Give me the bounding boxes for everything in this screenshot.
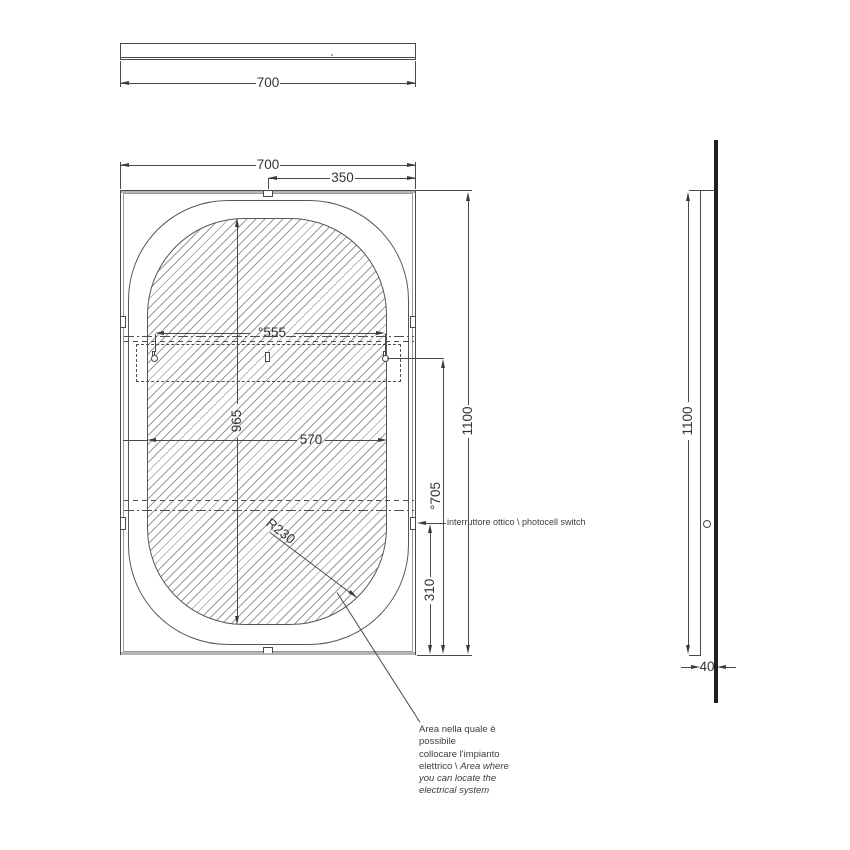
arrow-up-icon xyxy=(686,192,690,201)
mirror-profile-line xyxy=(700,190,701,655)
dim-line-965 xyxy=(237,227,238,404)
photocell-label: interruttore ottico \ photocell switch xyxy=(447,517,586,527)
dim-label-40: 40 xyxy=(698,660,716,674)
dim-label-965: 965 xyxy=(230,404,244,438)
arrow-left-icon xyxy=(417,521,426,525)
ext-line xyxy=(416,190,472,191)
ext-line xyxy=(417,655,472,656)
dim-line-1100 xyxy=(468,438,469,645)
dim-label-1100-side: 1100 xyxy=(681,404,695,438)
note-line: Area nella quale è xyxy=(419,724,539,736)
dim-label-705: °705 xyxy=(429,479,443,513)
dim-label-700: 700 xyxy=(238,158,298,172)
ext-line xyxy=(689,655,701,656)
arrow-up-icon xyxy=(235,218,239,227)
dim-hook xyxy=(268,179,269,189)
ext-line xyxy=(387,358,444,359)
note-line: elettrico \ Area where xyxy=(419,761,539,773)
arrow-left-icon xyxy=(155,331,164,335)
arrow-left-icon xyxy=(268,176,277,180)
arrow-up-icon xyxy=(428,524,432,533)
arrow-right-icon xyxy=(407,176,416,180)
hidden-line-top xyxy=(124,341,414,342)
top-notch xyxy=(263,191,273,197)
slot-hole xyxy=(151,355,158,362)
electrical-area-note: Area nella quale è possibile collocare l… xyxy=(419,724,539,798)
arrow-up-icon xyxy=(441,359,445,368)
arrow-left-icon xyxy=(120,163,129,167)
arrow-down-icon xyxy=(686,645,690,654)
arrow-right-icon xyxy=(407,81,416,85)
edge-clip-top-left xyxy=(120,316,126,328)
arrow-down-icon xyxy=(441,645,445,654)
dim-line-1100-side xyxy=(688,201,689,402)
photocell-switch xyxy=(410,517,416,530)
dim-line-310 xyxy=(430,533,431,577)
hidden-line-bottom xyxy=(124,500,414,501)
photocell-side-circle xyxy=(703,520,711,528)
dim-line-965 xyxy=(237,438,238,616)
arrow-right-icon xyxy=(376,331,385,335)
arrow-left-icon xyxy=(717,665,726,669)
note-line: you can locate the xyxy=(419,773,539,785)
dim-hook xyxy=(155,334,156,352)
note-line: possibile xyxy=(419,736,539,748)
hanging-slot-right xyxy=(381,351,389,363)
dim-label-555: °555 xyxy=(248,326,296,340)
dim-line-1100 xyxy=(468,201,469,405)
arrow-left-icon xyxy=(120,81,129,85)
note-line: collocare l'impianto xyxy=(419,749,539,761)
electrical-area-hatch xyxy=(147,218,387,625)
arrow-right-icon xyxy=(407,163,416,167)
note-line: electrical system xyxy=(419,785,539,797)
dim-hook xyxy=(385,334,386,352)
arrow-down-icon xyxy=(235,616,239,625)
drawing-canvas: 700 700 xyxy=(0,0,850,850)
dim-label-310: 310 xyxy=(423,573,437,607)
centerline-switch xyxy=(124,510,414,511)
edge-clip-bottom-left xyxy=(120,517,126,530)
dim-line-555 xyxy=(294,333,377,334)
hanging-slot-left xyxy=(150,351,158,363)
dim-label-570: 570 xyxy=(293,433,329,447)
dim-line-570 xyxy=(325,440,378,441)
top-view-glass-line xyxy=(121,57,415,58)
dim-stub xyxy=(681,667,691,668)
center-bracket xyxy=(265,352,270,362)
bottom-notch xyxy=(263,647,273,653)
dim-label-350: 350 xyxy=(315,171,370,185)
arrow-left-icon xyxy=(147,438,156,442)
arrow-down-icon xyxy=(428,645,432,654)
dim-label-700-top: 700 xyxy=(238,76,298,90)
arrow-up-icon xyxy=(466,192,470,201)
top-view-dot xyxy=(331,54,333,56)
dim-line-705 xyxy=(443,368,444,645)
dim-line-1100-side xyxy=(688,440,689,645)
junction-box-area xyxy=(136,344,401,382)
wall-line xyxy=(714,140,718,703)
dim-label-1100: 1100 xyxy=(461,404,475,438)
edge-clip-top-right xyxy=(410,316,416,328)
dim-stub xyxy=(726,667,736,668)
ext-line xyxy=(689,190,715,191)
dim-line-570 xyxy=(156,440,297,441)
arrow-right-icon xyxy=(378,438,387,442)
ext-line xyxy=(123,440,148,441)
arrow-down-icon xyxy=(466,645,470,654)
dim-line-310 xyxy=(430,604,431,645)
